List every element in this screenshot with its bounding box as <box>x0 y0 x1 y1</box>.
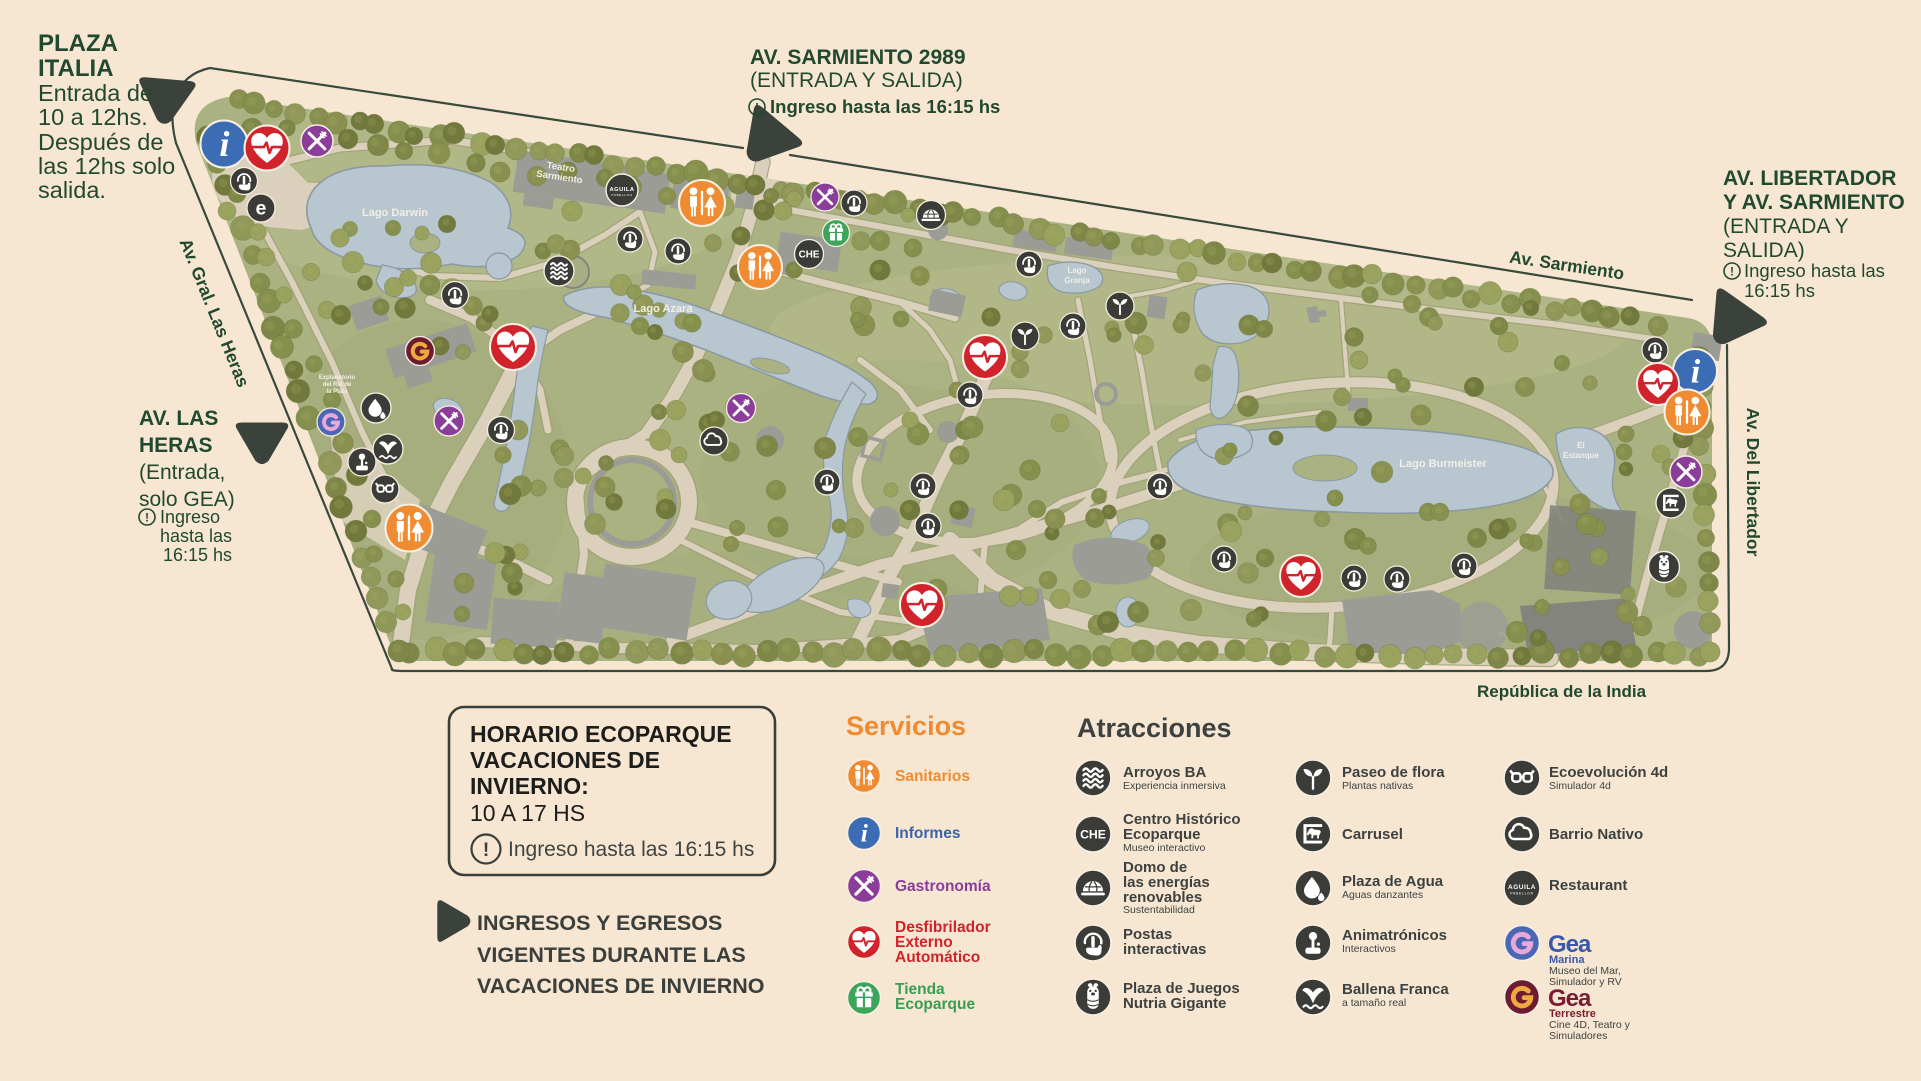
svg-text:Ingreso hasta las 16:15 hs: Ingreso hasta las 16:15 hs <box>770 96 1000 117</box>
svg-text:Simuladores: Simuladores <box>1549 1030 1607 1042</box>
svg-text:Después de: Después de <box>38 129 163 155</box>
svg-text:VACACIONES DE INVIERNO: VACACIONES DE INVIERNO <box>477 974 765 998</box>
svg-text:10 a 12hs.: 10 a 12hs. <box>38 104 148 130</box>
svg-text:AV. LAS: AV. LAS <box>139 407 218 430</box>
svg-text:!: ! <box>145 513 149 525</box>
svg-text:Gastronomía: Gastronomía <box>895 878 991 895</box>
svg-text:16:15 hs: 16:15 hs <box>1744 280 1815 301</box>
svg-text:salida.: salida. <box>38 177 106 203</box>
svg-text:Ecoevolución 4d: Ecoevolución 4d <box>1549 764 1668 781</box>
svg-text:Simulador 4d: Simulador 4d <box>1549 780 1611 792</box>
svg-text:Sanitarios: Sanitarios <box>895 768 970 785</box>
svg-text:Atracciones: Atracciones <box>1077 713 1232 743</box>
svg-text:Plaza de Agua: Plaza de Agua <box>1342 873 1444 890</box>
svg-text:Paseo de flora: Paseo de flora <box>1342 764 1445 781</box>
svg-text:!: ! <box>1730 267 1734 279</box>
svg-text:hasta las: hasta las <box>160 526 232 546</box>
svg-text:INVIERNO:: INVIERNO: <box>470 773 589 799</box>
svg-text:Interactivos: Interactivos <box>1342 943 1396 955</box>
svg-text:VACACIONES DE: VACACIONES DE <box>470 747 660 773</box>
svg-text:Servicios: Servicios <box>846 711 966 741</box>
svg-text:Av. Del Libertador: Av. Del Libertador <box>1743 408 1763 557</box>
svg-text:Restaurant: Restaurant <box>1549 877 1627 894</box>
svg-text:ITALIA: ITALIA <box>38 55 114 82</box>
svg-text:(ENTRADA Y SALIDA): (ENTRADA Y SALIDA) <box>750 69 963 92</box>
svg-text:Animatrónicos: Animatrónicos <box>1342 927 1447 944</box>
svg-text:VIGENTES DURANTE LAS: VIGENTES DURANTE LAS <box>477 943 746 967</box>
svg-text:las 12hs solo: las 12hs solo <box>38 153 175 179</box>
svg-text:del Río de: del Río de <box>323 382 352 388</box>
svg-text:Museo interactivo: Museo interactivo <box>1123 842 1205 854</box>
svg-text:Informes: Informes <box>895 825 960 842</box>
svg-text:Sustentabilidad: Sustentabilidad <box>1123 904 1195 916</box>
svg-text:Ingreso hasta las 16:15 hs: Ingreso hasta las 16:15 hs <box>508 838 754 861</box>
svg-text:(Entrada,: (Entrada, <box>139 461 225 484</box>
svg-text:Explanatorio: Explanatorio <box>319 375 356 381</box>
svg-text:Lago Darwin: Lago Darwin <box>362 207 428 219</box>
svg-text:!: ! <box>483 840 489 861</box>
svg-text:Automático: Automático <box>895 949 980 966</box>
svg-text:Nutria Gigante: Nutria Gigante <box>1123 995 1226 1012</box>
svg-text:Entrada de: Entrada de <box>38 80 153 106</box>
svg-text:Granja: Granja <box>1064 276 1090 285</box>
svg-text:Arroyos BA: Arroyos BA <box>1123 764 1207 781</box>
svg-text:AV. SARMIENTO 2989: AV. SARMIENTO 2989 <box>750 46 966 69</box>
svg-text:Ecoparque: Ecoparque <box>1123 826 1201 843</box>
svg-text:!: ! <box>755 103 759 115</box>
svg-text:INGRESOS Y EGRESOS: INGRESOS Y EGRESOS <box>477 911 722 935</box>
svg-text:PLAZA: PLAZA <box>38 30 118 57</box>
svg-text:Estanque: Estanque <box>1563 451 1600 460</box>
svg-text:Lago Burmeister: Lago Burmeister <box>1399 458 1487 470</box>
svg-text:Barrio Nativo: Barrio Nativo <box>1549 826 1643 843</box>
svg-text:Aguas danzantes: Aguas danzantes <box>1342 889 1423 901</box>
svg-text:la Plata: la Plata <box>326 389 348 395</box>
svg-text:Experiencia inmersiva: Experiencia inmersiva <box>1123 780 1226 792</box>
svg-text:SALIDA): SALIDA) <box>1723 239 1805 262</box>
svg-text:HORARIO ECOPARQUE: HORARIO ECOPARQUE <box>470 721 732 747</box>
svg-text:Ecoparque: Ecoparque <box>895 996 975 1013</box>
svg-text:Ingreso: Ingreso <box>160 507 220 527</box>
svg-text:HERAS: HERAS <box>139 434 213 457</box>
svg-text:Ballena Franca: Ballena Franca <box>1342 981 1449 998</box>
svg-text:interactivas: interactivas <box>1123 941 1206 958</box>
svg-text:Lago: Lago <box>1067 266 1086 275</box>
svg-text:Carrusel: Carrusel <box>1342 826 1403 843</box>
svg-text:AV. LIBERTADOR: AV. LIBERTADOR <box>1723 167 1896 190</box>
svg-text:Ingreso hasta las: Ingreso hasta las <box>1744 260 1885 281</box>
svg-text:10 A 17 HS: 10 A 17 HS <box>470 800 585 826</box>
svg-text:(ENTRADA Y: (ENTRADA Y <box>1723 215 1849 238</box>
svg-text:Y AV. SARMIENTO: Y AV. SARMIENTO <box>1723 191 1905 214</box>
svg-text:16:15 hs: 16:15 hs <box>163 545 232 565</box>
svg-text:Lago Azara: Lago Azara <box>634 303 694 315</box>
svg-text:Plantas nativas: Plantas nativas <box>1342 780 1413 792</box>
svg-text:República de la India: República de la India <box>1477 682 1647 701</box>
svg-text:El: El <box>1577 441 1585 450</box>
svg-text:a tamaño real: a tamaño real <box>1342 997 1406 1009</box>
